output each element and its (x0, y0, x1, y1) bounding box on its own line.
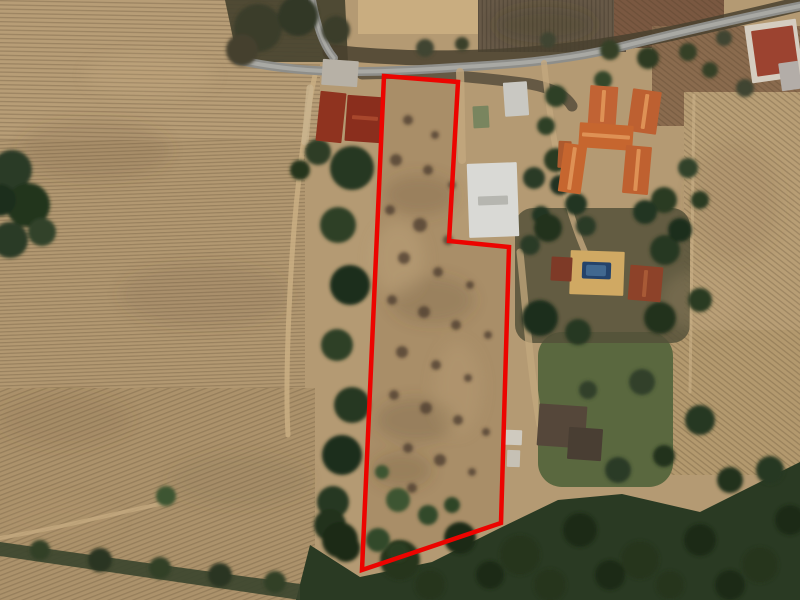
tree-canopy (322, 16, 350, 44)
shed-white-a (505, 430, 523, 446)
tree-canopy (656, 571, 684, 599)
pool-water-light (586, 265, 606, 277)
bare-tree (390, 154, 402, 166)
tree-canopy (88, 548, 112, 572)
tree-canopy (334, 387, 370, 423)
tree-canopy (579, 381, 597, 399)
tree-canopy (595, 560, 625, 590)
tree-canopy (565, 193, 587, 215)
bush (366, 528, 390, 552)
tree-canopy (545, 85, 567, 107)
tree-canopy (208, 563, 232, 587)
tree-canopy (679, 43, 697, 61)
bush (375, 465, 389, 479)
bare-tree (431, 360, 441, 370)
tree-canopy (537, 117, 555, 135)
tree-canopy (500, 535, 540, 575)
tree-canopy (717, 467, 743, 493)
tree-canopy (565, 319, 591, 345)
tree-canopy (637, 47, 659, 69)
soil-patch (170, 454, 310, 506)
soil-patch (0, 394, 130, 446)
tree-canopy (715, 570, 745, 600)
tree-canopy (668, 218, 692, 242)
bare-tree (418, 306, 430, 318)
soil-patch (85, 53, 215, 97)
house-driveway-west (305, 88, 310, 142)
tree-canopy (320, 207, 356, 243)
bare-tree (389, 390, 399, 400)
tree-canopy (321, 329, 353, 361)
field-west-mid-crop-rows (0, 140, 305, 395)
tree-canopy (455, 37, 469, 51)
tree-canopy (702, 62, 718, 78)
bare-tree (466, 281, 474, 289)
tree-canopy (621, 541, 659, 579)
bare-tree (482, 428, 490, 436)
tree-canopy (600, 40, 620, 60)
tree-canopy (756, 456, 784, 484)
pool-house-west (550, 256, 572, 281)
tree-canopy (653, 445, 675, 467)
tree-canopy (716, 30, 732, 46)
aerial-imagery-canvas (0, 0, 800, 600)
bare-tree (451, 320, 461, 330)
shed-white-b (507, 450, 521, 467)
outbuilding-gray (503, 81, 529, 117)
bare-tree (396, 346, 408, 358)
bare-tree (431, 131, 439, 139)
tree-canopy (534, 569, 566, 600)
tree-canopy (576, 216, 596, 236)
bare-tree (464, 374, 472, 382)
bare-tree (413, 218, 427, 232)
house-se-wing (567, 427, 603, 461)
bare-tree (453, 415, 463, 425)
bare-tree (468, 468, 476, 476)
tree-canopy (520, 235, 540, 255)
tree-canopy (685, 405, 715, 435)
bare-tree (420, 402, 432, 414)
tree-canopy (322, 522, 358, 558)
tree-canopy (736, 79, 754, 97)
tree-canopy (330, 146, 374, 190)
bush (386, 488, 410, 512)
soil-patch (120, 263, 290, 327)
driveway-warehouse (460, 72, 462, 160)
bare-tree (385, 205, 395, 215)
tree-canopy (629, 369, 655, 395)
satellite-map-view (0, 0, 800, 600)
tree-canopy (30, 540, 50, 560)
house-garage-white (321, 59, 359, 87)
bush (444, 497, 460, 513)
bare-tree (407, 483, 417, 493)
tree-canopy (523, 167, 545, 189)
tree-canopy (305, 139, 331, 165)
field-se-crop-rows (655, 330, 800, 475)
tree-canopy (330, 265, 370, 305)
tree-canopy (644, 302, 676, 334)
tree-canopy (416, 39, 434, 57)
tree-canopy (226, 34, 258, 66)
tree-canopy (149, 557, 171, 579)
tree-canopy (678, 158, 698, 178)
soil-patch (20, 120, 170, 180)
bush (418, 505, 438, 525)
tree-canopy (684, 524, 716, 556)
tree-canopy (688, 288, 712, 312)
shed-green-roof (472, 106, 489, 129)
tree-canopy (156, 486, 176, 506)
field-north-bare (358, 0, 483, 34)
tree-canopy (563, 513, 597, 547)
bare-tree (387, 295, 397, 305)
tree-canopy (742, 547, 778, 583)
bare-tree (434, 454, 446, 466)
tree-canopy (522, 300, 558, 336)
tree-canopy (633, 200, 657, 224)
bare-tree (423, 165, 433, 175)
bare-tree (403, 115, 413, 125)
ne-roof-gray (778, 61, 800, 92)
tree-canopy (264, 571, 286, 593)
warehouse-roof-marks (478, 195, 508, 205)
bare-tree (484, 331, 492, 339)
tree-canopy (605, 457, 631, 483)
tree-canopy (540, 32, 556, 48)
tree-canopy (28, 218, 56, 246)
tree-canopy (691, 191, 709, 209)
tree-canopy (476, 561, 504, 589)
bare-tree (433, 267, 443, 277)
house-red-west (315, 91, 346, 143)
tree-canopy (290, 160, 310, 180)
tree-canopy (322, 435, 362, 475)
bare-tree (398, 252, 410, 264)
bare-tree (403, 443, 413, 453)
tree-canopy (415, 570, 445, 600)
tree-canopy (534, 214, 562, 242)
